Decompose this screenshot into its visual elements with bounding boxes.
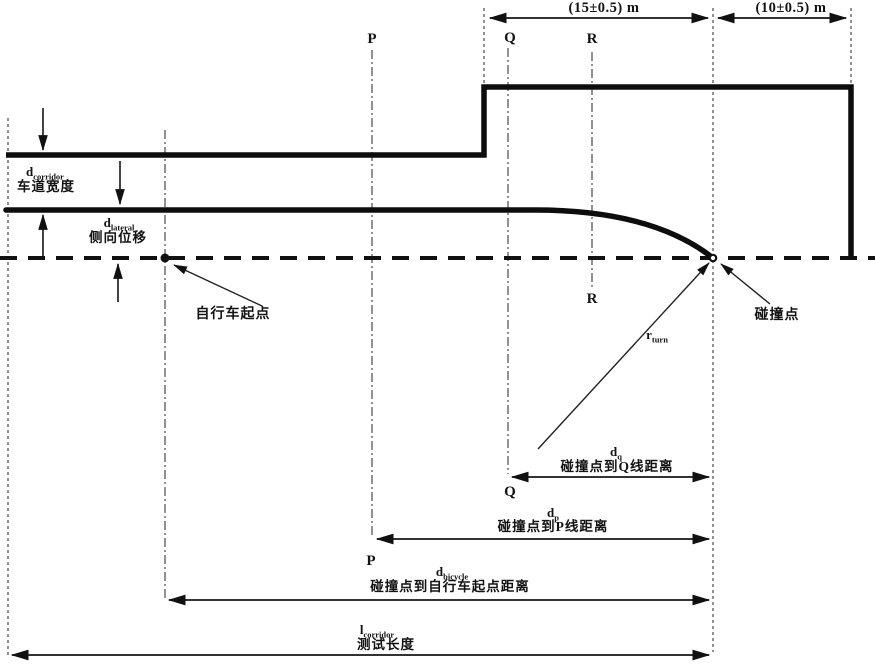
p-line-label-bottom: P [366,553,375,570]
corridor-width-label: 车道宽度 [17,180,75,195]
dq-label: 碰撞点到Q线距离 [560,460,673,475]
turn-radius-symbol: rturn [646,328,668,345]
q-line-label-top: Q [504,30,516,47]
r-line-label-mid: R [587,291,598,308]
collision-point [710,255,716,261]
collision-point-label: 碰撞点 [755,308,800,323]
p-line-label-top: P [367,31,376,48]
dbicycle-label: 碰撞点到自行车起点距离 [370,580,530,595]
bicycle-start-label: 自行车起点 [196,307,271,322]
turn-radius-arrow [538,263,709,449]
dp-label: 碰撞点到P线距离 [498,520,609,535]
lcorridor-label: 测试长度 [357,638,415,653]
bicycle-start-leader-arrow [174,265,262,306]
r-line-label-top: R [587,31,598,48]
test-geometry-diagram: (15±0.5) m (10±0.5) m P Q R dcorridor 车道… [0,0,875,671]
lateral-offset-label: 侧向位移 [89,231,147,246]
bicycle-start-point [161,254,170,263]
collision-point-leader-arrow [721,264,770,304]
dim-15m-label: (15±0.5) m [569,1,640,17]
q-line-label-bottom: Q [504,484,516,501]
dim-10m-label: (10±0.5) m [756,1,827,17]
